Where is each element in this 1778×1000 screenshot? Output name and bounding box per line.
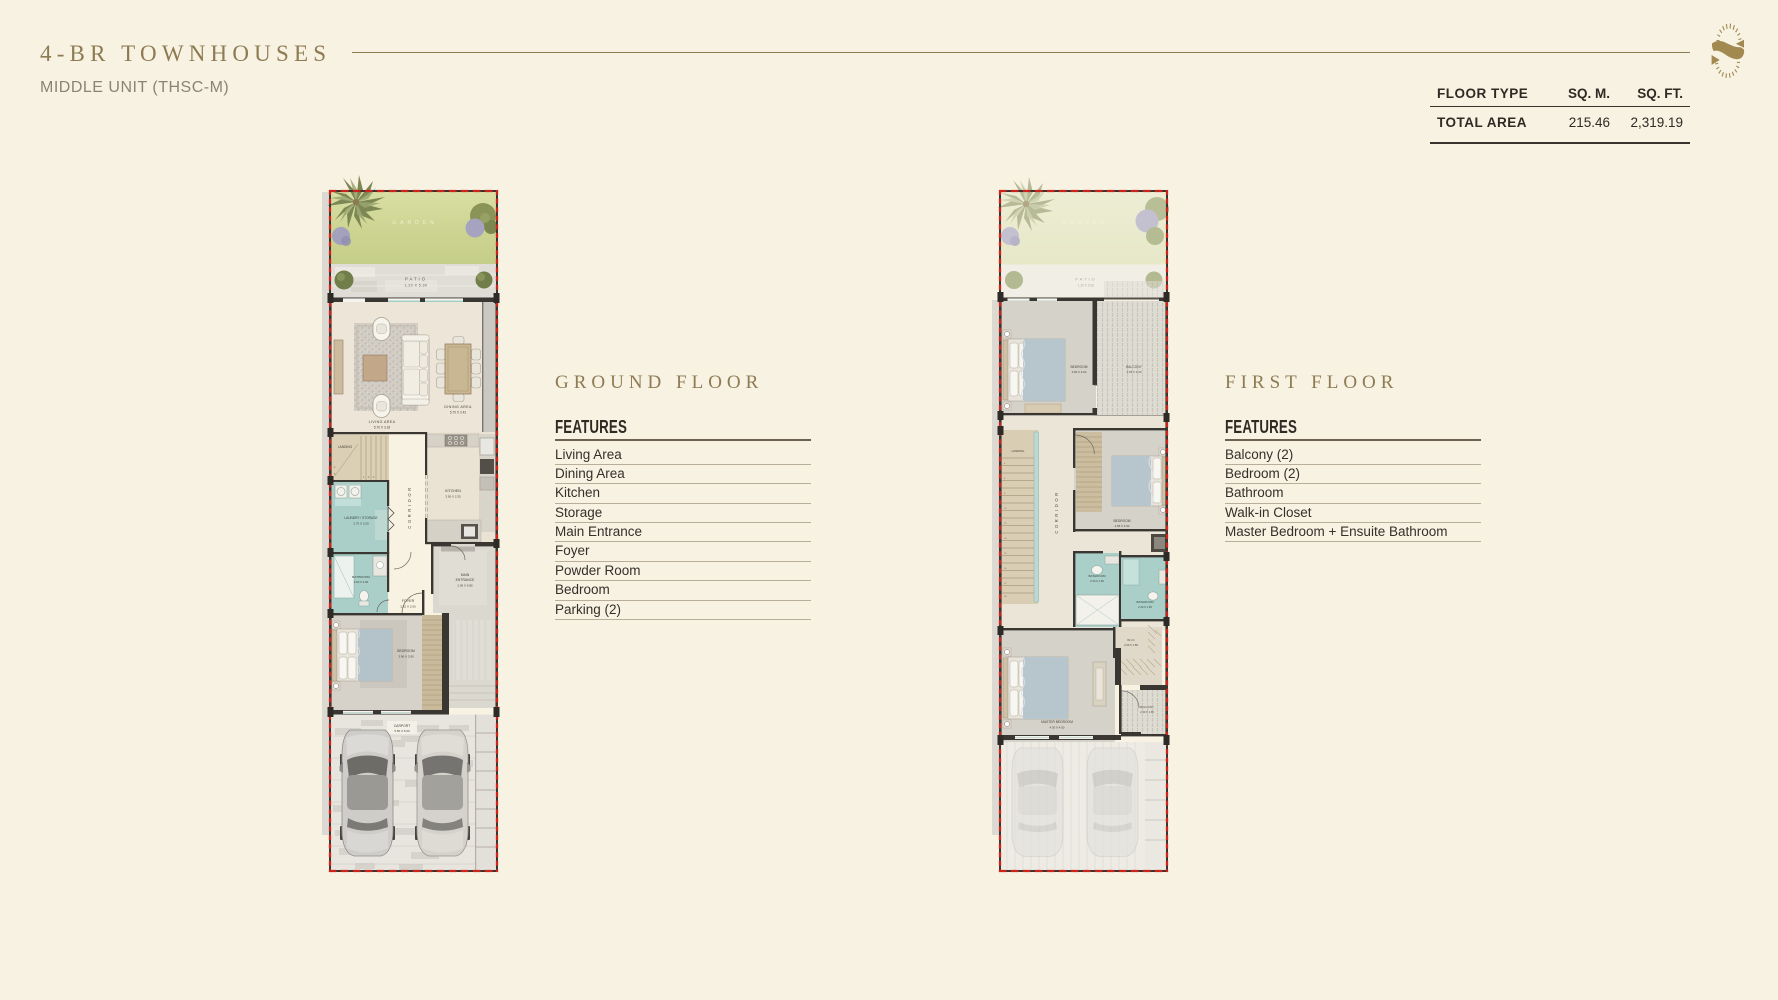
svg-text:BATHROOM: BATHROOM [1088, 574, 1106, 578]
svg-text:2.30 X 1.65: 2.30 X 1.65 [1140, 710, 1154, 714]
svg-text:4.55 X 3.30: 4.55 X 3.30 [1115, 524, 1130, 528]
svg-text:2.00 X 1.80: 2.00 X 1.80 [1124, 643, 1138, 647]
svg-text:KITCHEN: KITCHEN [445, 489, 461, 493]
svg-text:CORRIDOR: CORRIDOR [1054, 490, 1059, 534]
svg-text:5.70 X 3.18: 5.70 X 3.18 [374, 426, 391, 430]
svg-text:GARDEN: GARDEN [1062, 220, 1107, 226]
svg-text:LIVING AREA: LIVING AREA [369, 420, 396, 424]
svg-text:4.65 X 2.30: 4.65 X 2.30 [1127, 370, 1142, 374]
svg-text:5.70 X 2.42: 5.70 X 2.42 [450, 411, 467, 415]
svg-text:W.I.C: W.I.C [1127, 638, 1135, 642]
svg-text:2.40 X 1.65: 2.40 X 1.65 [1138, 605, 1152, 609]
svg-text:CORRIDOR: CORRIDOR [407, 485, 412, 529]
svg-text:PATIO: PATIO [405, 277, 427, 282]
svg-text:LAUNDRY / STORAGE: LAUNDRY / STORAGE [344, 516, 377, 520]
svg-text:MAIN: MAIN [461, 573, 470, 577]
svg-text:BEDROOM: BEDROOM [1070, 365, 1087, 369]
svg-text:4.50 X 3.20: 4.50 X 3.20 [1072, 370, 1087, 374]
svg-text:GARDEN: GARDEN [392, 220, 437, 226]
svg-text:1.20 X 5.90: 1.20 X 5.90 [405, 284, 428, 288]
svg-text:BATHROOM: BATHROOM [1136, 600, 1154, 604]
svg-text:1.20 X 5.92: 1.20 X 5.92 [1078, 284, 1095, 288]
svg-text:BALCONY: BALCONY [1140, 705, 1154, 709]
svg-text:3.50 X 2.35: 3.50 X 2.35 [445, 495, 461, 499]
svg-text:ENTRANCE: ENTRANCE [456, 578, 475, 582]
svg-text:2.00 X 2.00: 2.00 X 2.00 [354, 580, 369, 584]
svg-text:CARPORT: CARPORT [394, 724, 411, 728]
svg-text:4.30 X 4.00: 4.30 X 4.00 [1050, 726, 1065, 730]
svg-text:MASTER BEDROOM: MASTER BEDROOM [1041, 720, 1073, 724]
svg-text:2.70 X 2.00: 2.70 X 2.00 [353, 522, 369, 526]
svg-text:DINING AREA: DINING AREA [444, 405, 472, 409]
svg-text:BEDROOM: BEDROOM [397, 649, 415, 653]
svg-text:2.00 X 5.85: 2.00 X 5.85 [457, 584, 473, 588]
svg-text:BATHROOM: BATHROOM [352, 575, 370, 579]
svg-text:BALCONY: BALCONY [1126, 365, 1143, 369]
svg-text:PATIO: PATIO [1075, 277, 1096, 282]
svg-text:FOYER: FOYER [402, 599, 415, 603]
svg-text:LANDING: LANDING [1012, 449, 1026, 453]
svg-text:3.90 X 3.90: 3.90 X 3.90 [398, 655, 414, 659]
svg-text:BEDROOM: BEDROOM [1113, 519, 1130, 523]
svg-text:LANDING: LANDING [338, 445, 353, 449]
svg-text:5.50 X 5.00: 5.50 X 5.00 [394, 729, 410, 733]
svg-text:2.40 X 1.60: 2.40 X 1.60 [1090, 579, 1104, 583]
